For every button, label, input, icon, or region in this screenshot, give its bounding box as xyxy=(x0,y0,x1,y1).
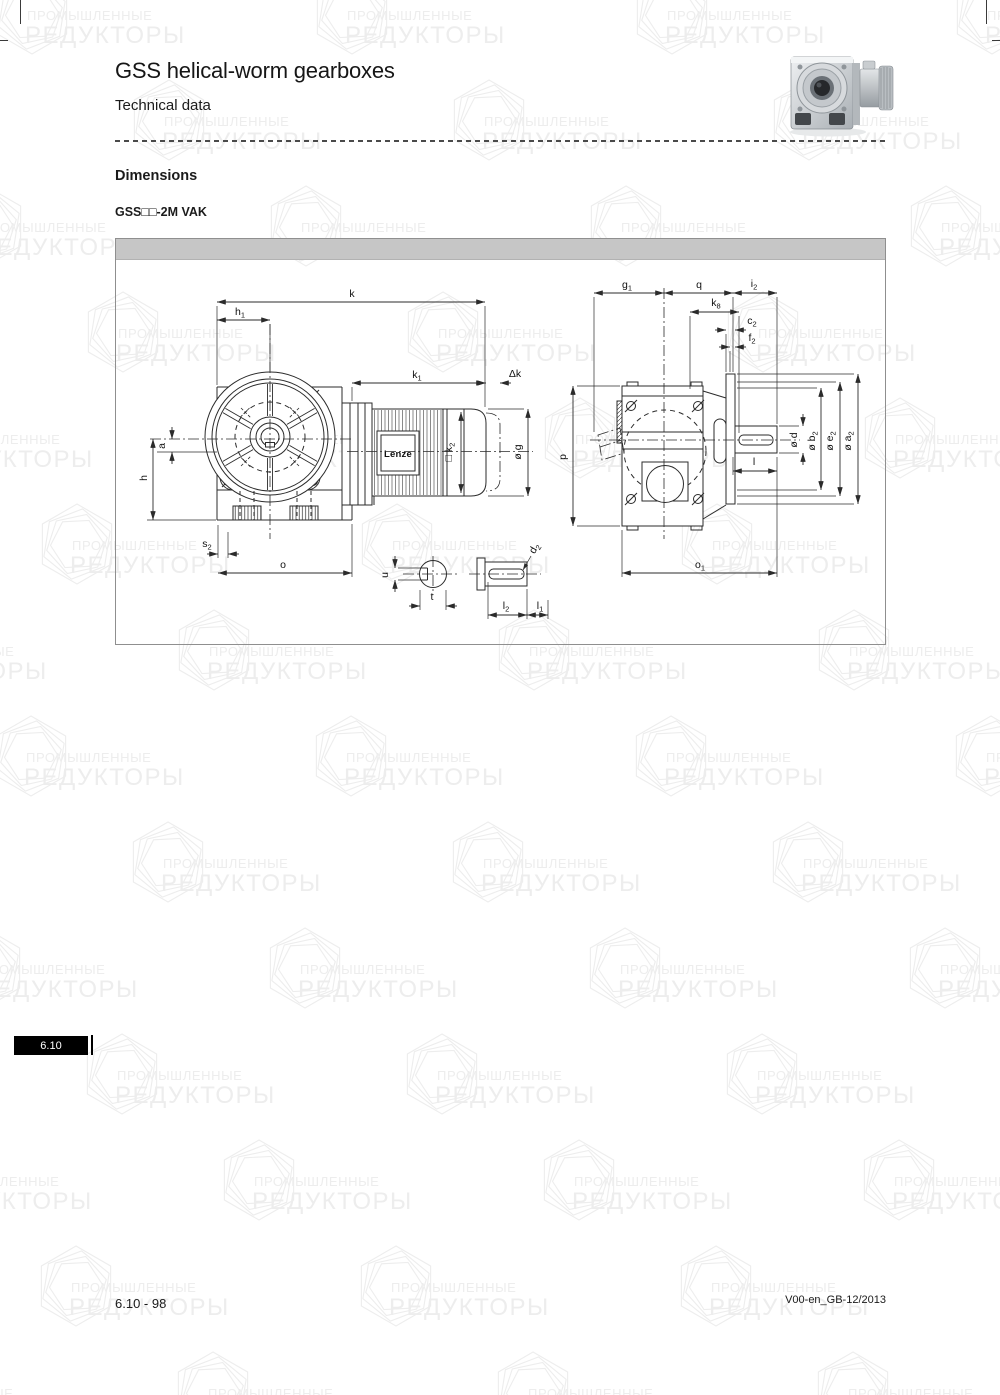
dim-label-a2: ø a2 xyxy=(842,431,856,450)
side-tab-bar xyxy=(91,1035,93,1055)
dim-label-e2: ø e2 xyxy=(824,431,838,450)
page-content: GSS helical-worm gearboxes Technical dat… xyxy=(0,0,1000,1395)
dim-label-k: k xyxy=(349,288,355,300)
front-view: Lenze xyxy=(205,372,527,590)
motor-brand-label: Lenze xyxy=(384,449,412,460)
document-code: V00-en_GB-12/2013 xyxy=(785,1294,886,1306)
drawing-frame: Lenze xyxy=(115,238,886,645)
dim-label-l2: l2 xyxy=(503,600,510,614)
dim-label-g1: g1 xyxy=(622,279,632,293)
crop-mark-top-right-h xyxy=(992,40,1000,41)
dim-label-dk: Δk xyxy=(509,368,522,380)
page-subtitle: Technical data xyxy=(115,97,211,114)
dim-label-s2: s2 xyxy=(202,538,211,552)
dim-label-k1: k1 xyxy=(412,369,421,383)
dim-label-o: o xyxy=(280,559,286,571)
dim-label-p: p xyxy=(557,454,569,460)
drawing-header-bar xyxy=(116,239,885,260)
section-heading: Dimensions xyxy=(115,168,197,184)
product-photo xyxy=(783,45,899,139)
page-title: GSS helical-worm gearboxes xyxy=(115,58,395,84)
side-tab: 6.10 xyxy=(14,1036,88,1055)
crop-mark-top-left-h xyxy=(0,40,8,41)
dashed-separator xyxy=(115,140,886,142)
dim-label-h1: h1 xyxy=(235,306,245,320)
dim-label-h: h xyxy=(138,475,150,481)
dim-label-t: t xyxy=(431,591,434,603)
dim-label-b2: ø b2 xyxy=(806,431,820,450)
dim-label-d: ø d xyxy=(788,432,800,447)
dim-label-l: l xyxy=(753,456,755,468)
page-number: 6.10 - 98 xyxy=(115,1296,166,1311)
dim-label-g: ø g xyxy=(512,444,524,459)
dim-label-c2: c2 xyxy=(747,315,756,329)
dim-label-k8: k8 xyxy=(711,297,720,311)
side-view xyxy=(617,374,777,530)
dim-label-d2: d2 xyxy=(527,541,544,556)
dim-label-o1: o1 xyxy=(695,559,705,573)
catalog-page: ПРОМЫШЛЕННЫЕРЕДУКТОРЫПРОМЫШЛЕННЫЕРЕДУКТО… xyxy=(0,0,1000,1395)
crop-mark-top-left-v xyxy=(20,0,21,24)
crop-mark-top-right-v xyxy=(986,0,987,24)
dim-label-u: u xyxy=(379,572,391,578)
dim-label-q: q xyxy=(696,279,702,291)
dim-label-f2: f2 xyxy=(748,332,755,346)
dim-label-l1: l1 xyxy=(537,600,544,614)
technical-drawing: Lenze xyxy=(116,259,885,644)
variant-label: GSS□□-2M VAK xyxy=(115,205,207,219)
dim-label-i2: i2 xyxy=(751,278,758,292)
dim-label-a: a xyxy=(156,443,168,449)
